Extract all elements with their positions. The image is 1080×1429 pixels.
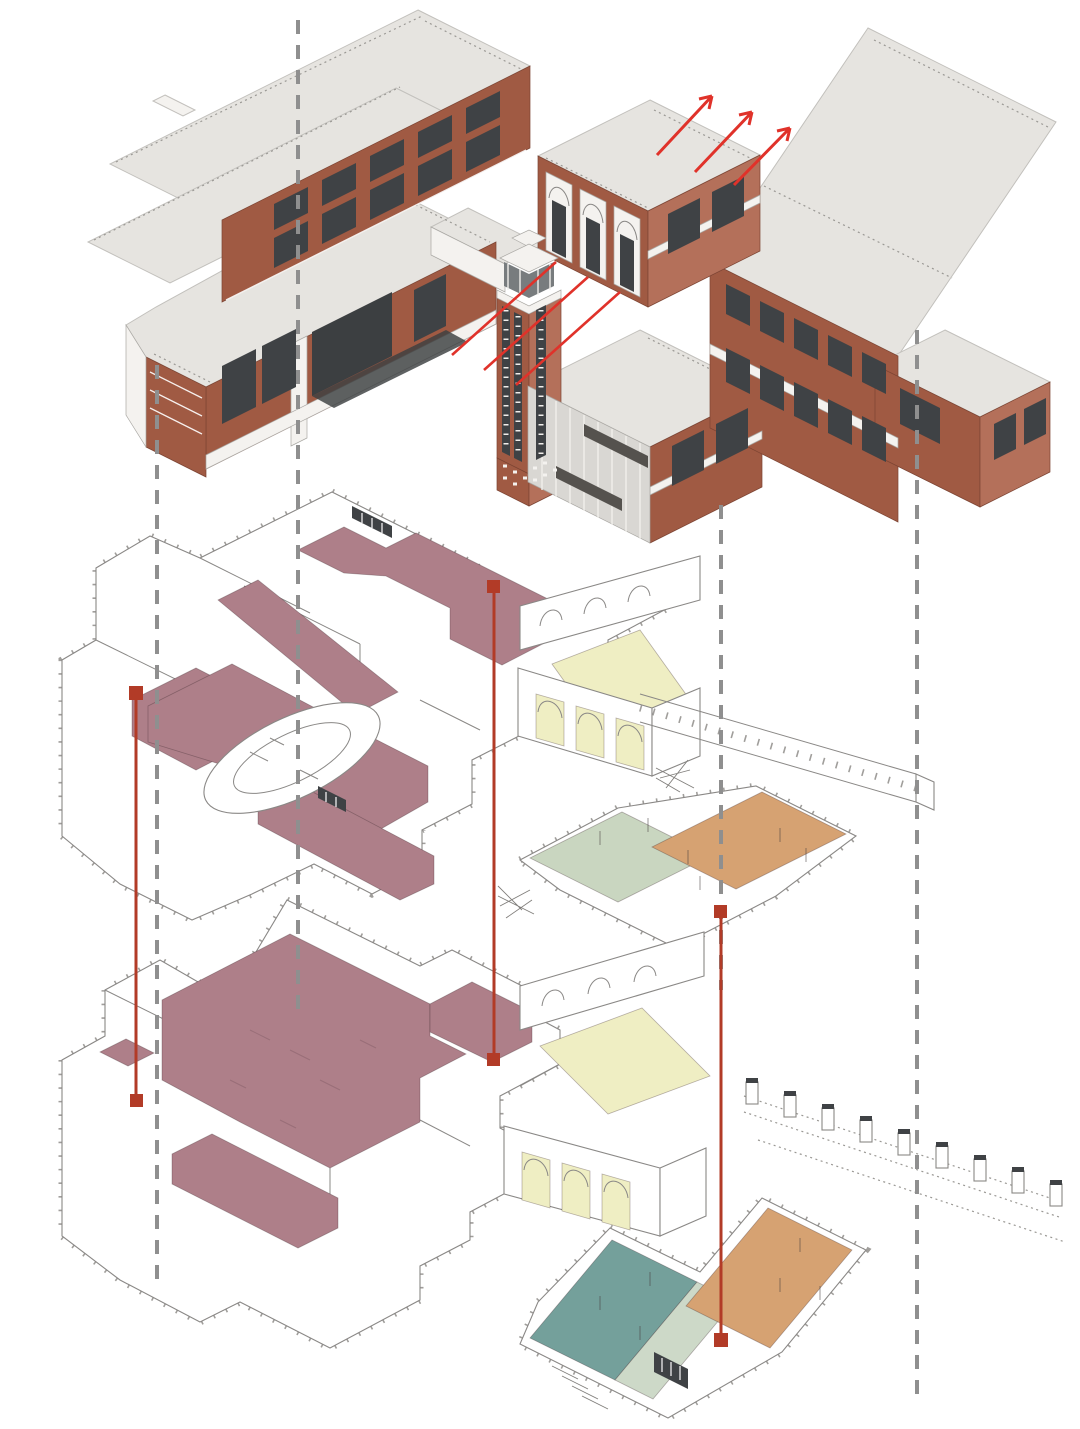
pier-caps <box>746 1078 1062 1185</box>
tower-face-sw <box>497 298 529 474</box>
arch-door <box>620 234 634 292</box>
tower-glazing-strip <box>536 305 546 460</box>
arcade-base-line <box>744 1112 1062 1218</box>
hatch-piece <box>498 886 534 918</box>
red-square-marker <box>487 580 500 593</box>
yellow-arch-panel <box>522 1152 550 1208</box>
pier <box>974 1159 986 1181</box>
pier-cap <box>860 1116 872 1121</box>
upper-floor-plate <box>62 492 934 948</box>
pier-cap <box>1012 1167 1024 1172</box>
hall-side-wall <box>660 1148 706 1236</box>
red-square-marker <box>714 1333 728 1347</box>
hall-rear-arch-wall <box>520 932 704 1030</box>
pier-cap <box>898 1129 910 1134</box>
diagram-canvas <box>0 0 1080 1429</box>
pier-cap <box>784 1091 796 1096</box>
pier-cap <box>1050 1180 1062 1185</box>
yellow-floor <box>540 1008 710 1114</box>
pier <box>784 1095 796 1117</box>
pier <box>822 1108 834 1130</box>
yellow-arch-panel <box>602 1174 630 1230</box>
pier <box>1050 1184 1062 1206</box>
upper-green-orange-block <box>498 760 856 948</box>
pier <box>898 1133 910 1155</box>
pier-cap <box>822 1104 834 1109</box>
exploded-axonometric-diagram <box>0 0 1080 1429</box>
red-square-marker <box>487 1053 500 1066</box>
arcade-piers <box>746 1078 1062 1206</box>
pier-cap <box>746 1078 758 1083</box>
pier-cap <box>936 1142 948 1147</box>
roof-dormer <box>153 95 195 116</box>
pier <box>860 1120 872 1142</box>
red-square-marker <box>714 905 727 918</box>
pier <box>746 1082 758 1104</box>
pier <box>1012 1171 1024 1193</box>
yellow-arch-panel <box>562 1163 590 1219</box>
pier-bodies <box>746 1082 1062 1206</box>
arch-door <box>586 217 600 275</box>
ground-yellow-hall <box>504 932 710 1236</box>
building-massing <box>88 10 1056 543</box>
ground-floor-plate <box>62 900 1065 1418</box>
red-square-marker <box>129 686 143 700</box>
pier <box>936 1146 948 1168</box>
bottom-slab-group <box>520 1198 866 1418</box>
arch-door <box>552 200 566 258</box>
red-square-marker <box>130 1094 143 1107</box>
pier-cap <box>974 1155 986 1160</box>
